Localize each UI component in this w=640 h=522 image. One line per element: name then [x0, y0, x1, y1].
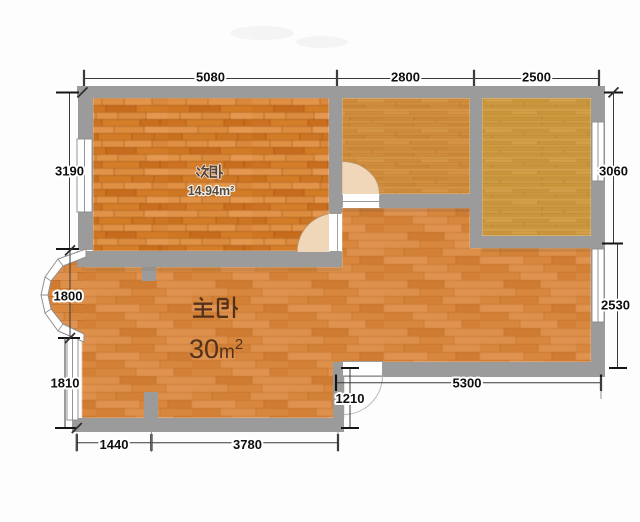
svg-text:1440: 1440 — [100, 437, 129, 452]
svg-text:1800: 1800 — [54, 289, 83, 304]
svg-text:5300: 5300 — [453, 375, 482, 390]
svg-text:3780: 3780 — [233, 437, 262, 452]
svg-text:3060: 3060 — [599, 164, 628, 179]
svg-text:14.94m²: 14.94m² — [188, 184, 235, 198]
svg-text:2500: 2500 — [522, 70, 551, 85]
svg-text:3190: 3190 — [55, 164, 84, 179]
svg-text:1210: 1210 — [336, 391, 365, 406]
svg-text:1810: 1810 — [51, 376, 80, 391]
svg-text:5080: 5080 — [196, 70, 225, 85]
svg-text:2800: 2800 — [391, 70, 420, 85]
svg-text:2530: 2530 — [601, 298, 630, 313]
